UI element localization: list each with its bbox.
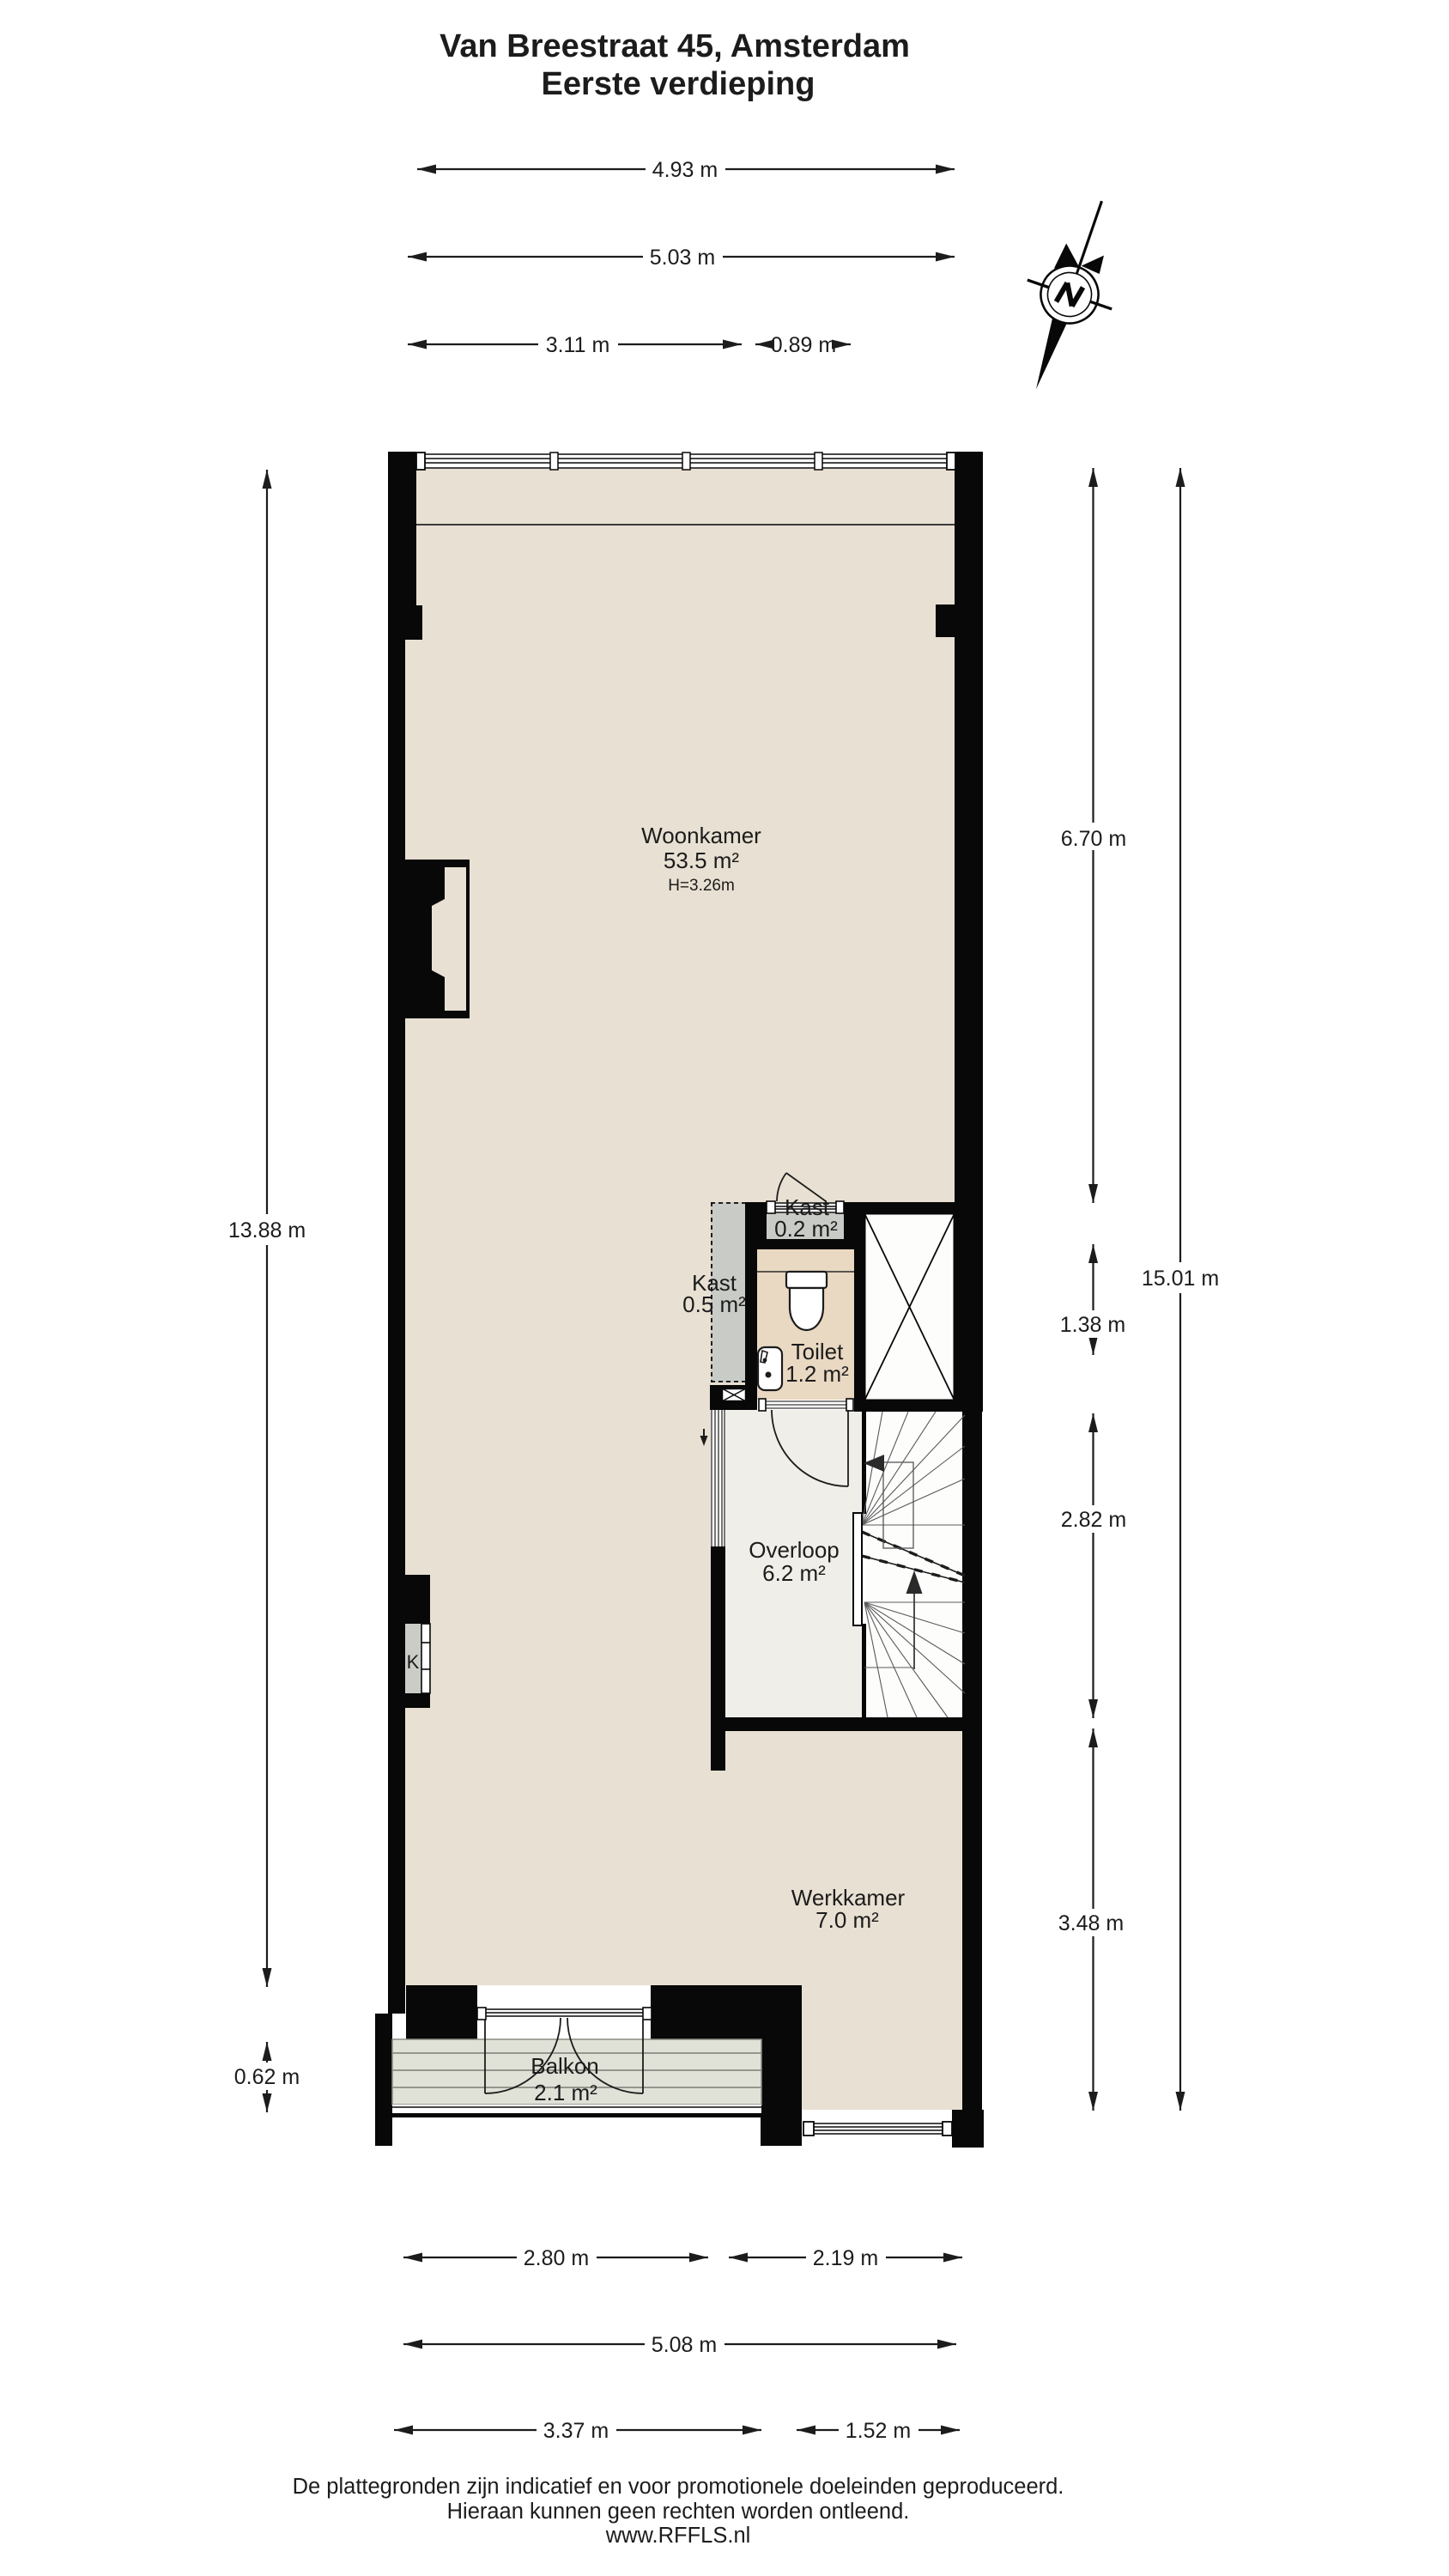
svg-text:De plattegronden zijn indicati: De plattegronden zijn indicatief en voor… (293, 2475, 1064, 2499)
svg-text:H=3.26m: H=3.26m (668, 877, 735, 895)
svg-text:Hieraan kunnen geen rechten wo: Hieraan kunnen geen rechten worden ontle… (447, 2500, 910, 2524)
svg-text:4.93 m: 4.93 m (652, 158, 718, 182)
svg-text:2.1 m²: 2.1 m² (534, 2080, 597, 2105)
svg-text:0.5 m²: 0.5 m² (682, 1291, 746, 1317)
svg-text:1.2 m²: 1.2 m² (785, 1361, 849, 1387)
svg-text:Van Breestraat 45, Amsterdam: Van Breestraat 45, Amsterdam (440, 28, 910, 64)
svg-text:5.03 m: 5.03 m (650, 246, 715, 270)
svg-text:7.0 m²: 7.0 m² (815, 1907, 879, 1933)
svg-text:2.82 m: 2.82 m (1061, 1508, 1126, 1532)
svg-text:1.38 m: 1.38 m (1060, 1313, 1125, 1337)
svg-text:www.RFFLS.nl: www.RFFLS.nl (605, 2524, 751, 2548)
svg-text:2.19 m: 2.19 m (813, 2246, 878, 2270)
svg-text:Eerste verdieping: Eerste verdieping (542, 66, 815, 102)
svg-text:0.62 m: 0.62 m (234, 2065, 300, 2089)
svg-text:3.48 m: 3.48 m (1058, 1911, 1124, 1935)
svg-text:53.5 m²: 53.5 m² (664, 848, 739, 873)
svg-text:0.2 m²: 0.2 m² (774, 1216, 838, 1242)
svg-text:3.11 m: 3.11 m (546, 333, 610, 357)
svg-text:6.2 m²: 6.2 m² (762, 1560, 826, 1586)
svg-text:1.52 m: 1.52 m (846, 2419, 911, 2443)
svg-text:2.80 m: 2.80 m (524, 2246, 589, 2270)
svg-text:5.08 m: 5.08 m (652, 2333, 717, 2357)
svg-text:15.01 m: 15.01 m (1142, 1267, 1219, 1291)
svg-text:Overloop: Overloop (749, 1537, 840, 1563)
svg-text:3.37 m: 3.37 m (543, 2419, 609, 2443)
svg-text:6.70 m: 6.70 m (1061, 827, 1126, 851)
svg-text:0.89 m: 0.89 m (771, 333, 836, 357)
svg-text:K: K (407, 1651, 420, 1673)
svg-text:Balkon: Balkon (530, 2053, 599, 2079)
svg-text:13.88 m: 13.88 m (228, 1218, 306, 1242)
svg-text:Woonkamer: Woonkamer (641, 823, 761, 848)
